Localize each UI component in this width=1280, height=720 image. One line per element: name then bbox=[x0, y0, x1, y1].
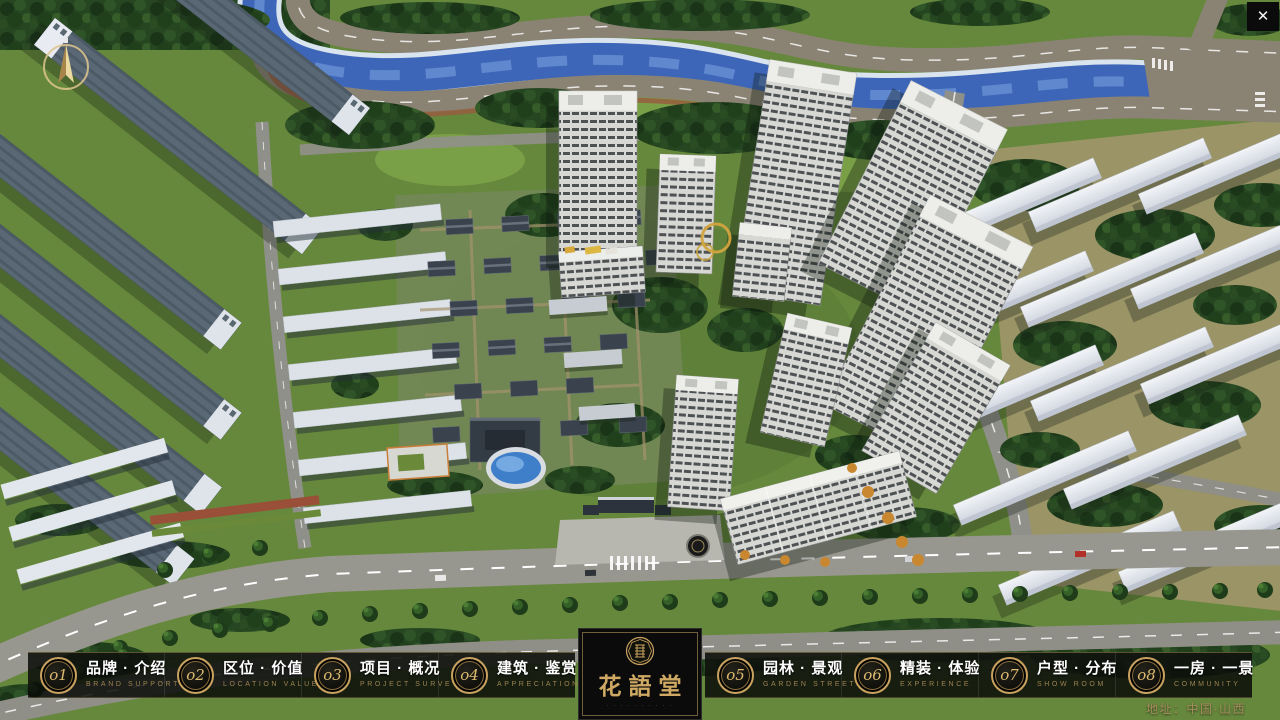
nav-label-en: BRAND SUPPORT bbox=[86, 681, 164, 689]
nav-item-architecture[interactable]: o4 建筑 · 鉴赏 APPRECIATION bbox=[439, 653, 575, 697]
nav-badge-5: o5 bbox=[717, 657, 754, 694]
nav-item-room-view[interactable]: o8 一房 · 一景 COMMUNITY bbox=[1116, 653, 1252, 697]
seal-emblem-icon bbox=[625, 636, 655, 666]
nav-label-zh: 项目 · 概况 bbox=[360, 661, 438, 678]
nav-label-zh: 精装 · 体验 bbox=[900, 661, 978, 678]
nav-label-en: APPRECIATION bbox=[497, 681, 575, 689]
nav-label-en: PROJECT SURVEY bbox=[360, 681, 438, 689]
nav-badge-8: o8 bbox=[1128, 657, 1165, 694]
bottom-nav-left: o1 品牌 · 介绍 BRAND SUPPORT o2 区位 · 价值 LOCA… bbox=[28, 652, 575, 698]
close-icon: ✕ bbox=[1257, 9, 1270, 24]
nav-badge-2: o2 bbox=[177, 657, 214, 694]
nav-badge-3: o3 bbox=[314, 657, 351, 694]
nav-label-zh: 建筑 · 鉴赏 bbox=[497, 661, 575, 678]
nav-label-en: GARDEN STREET bbox=[763, 681, 841, 689]
nav-badge-4: o4 bbox=[451, 657, 488, 694]
brand-subtitle: · · · · · · · · · · bbox=[606, 703, 673, 709]
nav-label-zh: 一房 · 一景 bbox=[1174, 661, 1252, 678]
nav-item-interior-experience[interactable]: o6 精装 · 体验 EXPERIENCE bbox=[842, 653, 979, 697]
nav-item-brand-intro[interactable]: o1 品牌 · 介绍 BRAND SUPPORT bbox=[28, 653, 165, 697]
site-plan-3d-view bbox=[0, 0, 1280, 720]
nav-label-en: COMMUNITY bbox=[1174, 681, 1252, 689]
nav-item-project-survey[interactable]: o3 项目 · 概况 PROJECT SURVEY bbox=[302, 653, 439, 697]
nav-label-zh: 园林 · 景观 bbox=[763, 661, 841, 678]
close-button[interactable]: ✕ bbox=[1247, 2, 1279, 31]
nav-badge-1: o1 bbox=[40, 657, 77, 694]
nav-item-garden-landscape[interactable]: o5 园林 · 景观 GARDEN STREET bbox=[705, 653, 842, 697]
nav-label-zh: 户型 · 分布 bbox=[1037, 661, 1115, 678]
bottom-nav-right: o5 园林 · 景观 GARDEN STREET o6 精装 · 体验 EXPE… bbox=[705, 652, 1252, 698]
brand-name: 花語堂 bbox=[599, 667, 689, 701]
nav-badge-6: o6 bbox=[854, 657, 891, 694]
swimming-pool bbox=[486, 447, 546, 489]
orange-trim-building bbox=[387, 444, 449, 480]
nav-label-zh: 品牌 · 介绍 bbox=[86, 661, 164, 678]
nav-badge-7: o7 bbox=[991, 657, 1028, 694]
nav-item-location-value[interactable]: o2 区位 · 价值 LOCATION VALUE bbox=[165, 653, 302, 697]
compass-icon bbox=[38, 36, 94, 94]
nav-label-zh: 区位 · 价值 bbox=[223, 661, 301, 678]
nav-label-en: LOCATION VALUE bbox=[223, 681, 301, 689]
nav-label-en: SHOW ROOM bbox=[1037, 681, 1115, 689]
project-address: 地址：中国·山西 bbox=[1146, 700, 1246, 717]
brand-logo-panel[interactable]: 花語堂 · · · · · · · · · · bbox=[578, 628, 702, 720]
nav-item-floorplan-distribution[interactable]: o7 户型 · 分布 SHOW ROOM bbox=[979, 653, 1116, 697]
sales-presentation-screen: ✕ o1 品牌 · 介绍 BRAND SUPPORT o2 区位 · 价值 LO… bbox=[0, 0, 1280, 720]
nav-label-en: EXPERIENCE bbox=[900, 681, 978, 689]
